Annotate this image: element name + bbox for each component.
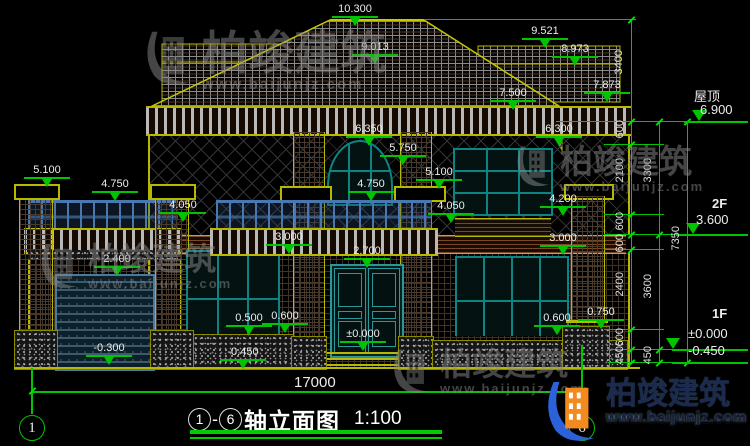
brand-name: 柏竣建筑 <box>606 376 730 411</box>
garage-right-pillar-cap <box>150 184 196 200</box>
elevation-marker: 4.200 <box>540 194 586 216</box>
dim-value: 600 <box>614 328 626 346</box>
dim-value: 450 <box>614 346 626 364</box>
balcony-slab <box>210 228 438 256</box>
level-line-roof <box>684 121 748 123</box>
elevation-marker: 6.300 <box>536 124 582 146</box>
total-width-value: 17000 <box>294 374 336 391</box>
title-underline-thin <box>190 437 442 439</box>
dim-value: 7350 <box>670 226 682 250</box>
elevation-marker: 4.050 <box>160 200 206 222</box>
level-value-1f: ±0.000 <box>688 326 728 341</box>
stone-base-pier-left <box>291 336 327 370</box>
title-underline-thick <box>190 430 442 434</box>
level-value-roof: 6.900 <box>700 102 733 117</box>
elevation-marker: 3.000 <box>540 233 586 255</box>
elevation-marker: 5.100 <box>416 167 462 189</box>
stone-base-pier-right <box>398 336 434 370</box>
title-scale: 1:100 <box>354 408 402 430</box>
title-dash: - <box>212 409 218 430</box>
elevation-marker: 0.600 <box>534 313 580 335</box>
brand-url: www.baijunjz.com <box>606 410 747 426</box>
dim-value: 3600 <box>642 274 654 298</box>
dim-leader <box>424 19 636 20</box>
level-triangle <box>666 338 680 349</box>
elevation-marker: ±0.000 <box>340 329 386 351</box>
dim-value: 3400 <box>613 50 625 74</box>
elevation-marker: 3.000 <box>266 232 312 254</box>
dim-value: 3300 <box>642 158 654 182</box>
dim-leader <box>604 249 664 250</box>
elevation-marker: 7.500 <box>490 88 536 110</box>
axis-bubble-1: 1 <box>19 415 45 441</box>
level-value-2f: 3.600 <box>696 212 729 227</box>
dim-value: 450 <box>642 346 654 364</box>
elevation-marker: 0.750 <box>578 307 624 329</box>
dim-leader <box>604 144 664 145</box>
elevation-marker: 4.750 <box>348 179 394 201</box>
dim-value: 2400 <box>614 272 626 296</box>
level-line-minus <box>672 362 748 364</box>
dim-value: 600 <box>614 234 626 252</box>
elevation-marker: 4.750 <box>92 179 138 201</box>
garage-right-pillar-base <box>150 330 194 370</box>
level-value-basement: -0.450 <box>688 343 725 358</box>
elevation-marker: 0.600 <box>262 311 308 333</box>
elevation-marker: -0.300 <box>86 343 132 365</box>
garage-left-pillar-base <box>14 330 58 370</box>
elevation-marker: 7.873 <box>584 80 630 102</box>
level-label-1f: 1F <box>712 306 727 321</box>
garage-left-pillar-shaft <box>19 196 53 330</box>
elevation-marker: -0.450 <box>220 347 266 369</box>
dim-leader <box>604 214 664 215</box>
dim-value: 600 <box>614 120 626 138</box>
elevation-marker: 5.100 <box>24 165 70 187</box>
elevation-marker: 2.400 <box>94 254 140 276</box>
total-width-dim-line <box>32 391 582 393</box>
elevation-marker: 8.973 <box>552 44 598 66</box>
level-line-2f <box>676 234 748 236</box>
elevation-marker: 5.750 <box>380 143 426 165</box>
dim-line-mid <box>659 122 660 363</box>
elevation-marker: 9.013 <box>352 42 398 64</box>
cad-elevation-drawing: 10.300 9.013 9.521 8.973 7.873 7.500 6.3… <box>0 0 750 446</box>
level-label-2f: 2F <box>712 196 727 211</box>
brand-logo-block: 柏竣建筑 www.baijunjz.com <box>540 378 747 444</box>
dim-value: 600 <box>614 212 626 230</box>
ground-line <box>14 367 640 369</box>
elevation-marker: 2.700 <box>344 246 390 268</box>
brand-logo-icon <box>540 378 602 444</box>
title-axis-to: 6 <box>219 408 242 431</box>
dim-leader <box>604 329 664 330</box>
dim-line-inner <box>631 20 632 363</box>
elevation-marker: 4.050 <box>428 201 474 223</box>
dim-value: 2100 <box>614 158 626 182</box>
elevation-marker: 10.300 <box>332 4 378 26</box>
title-axis-from: 1 <box>188 408 211 431</box>
